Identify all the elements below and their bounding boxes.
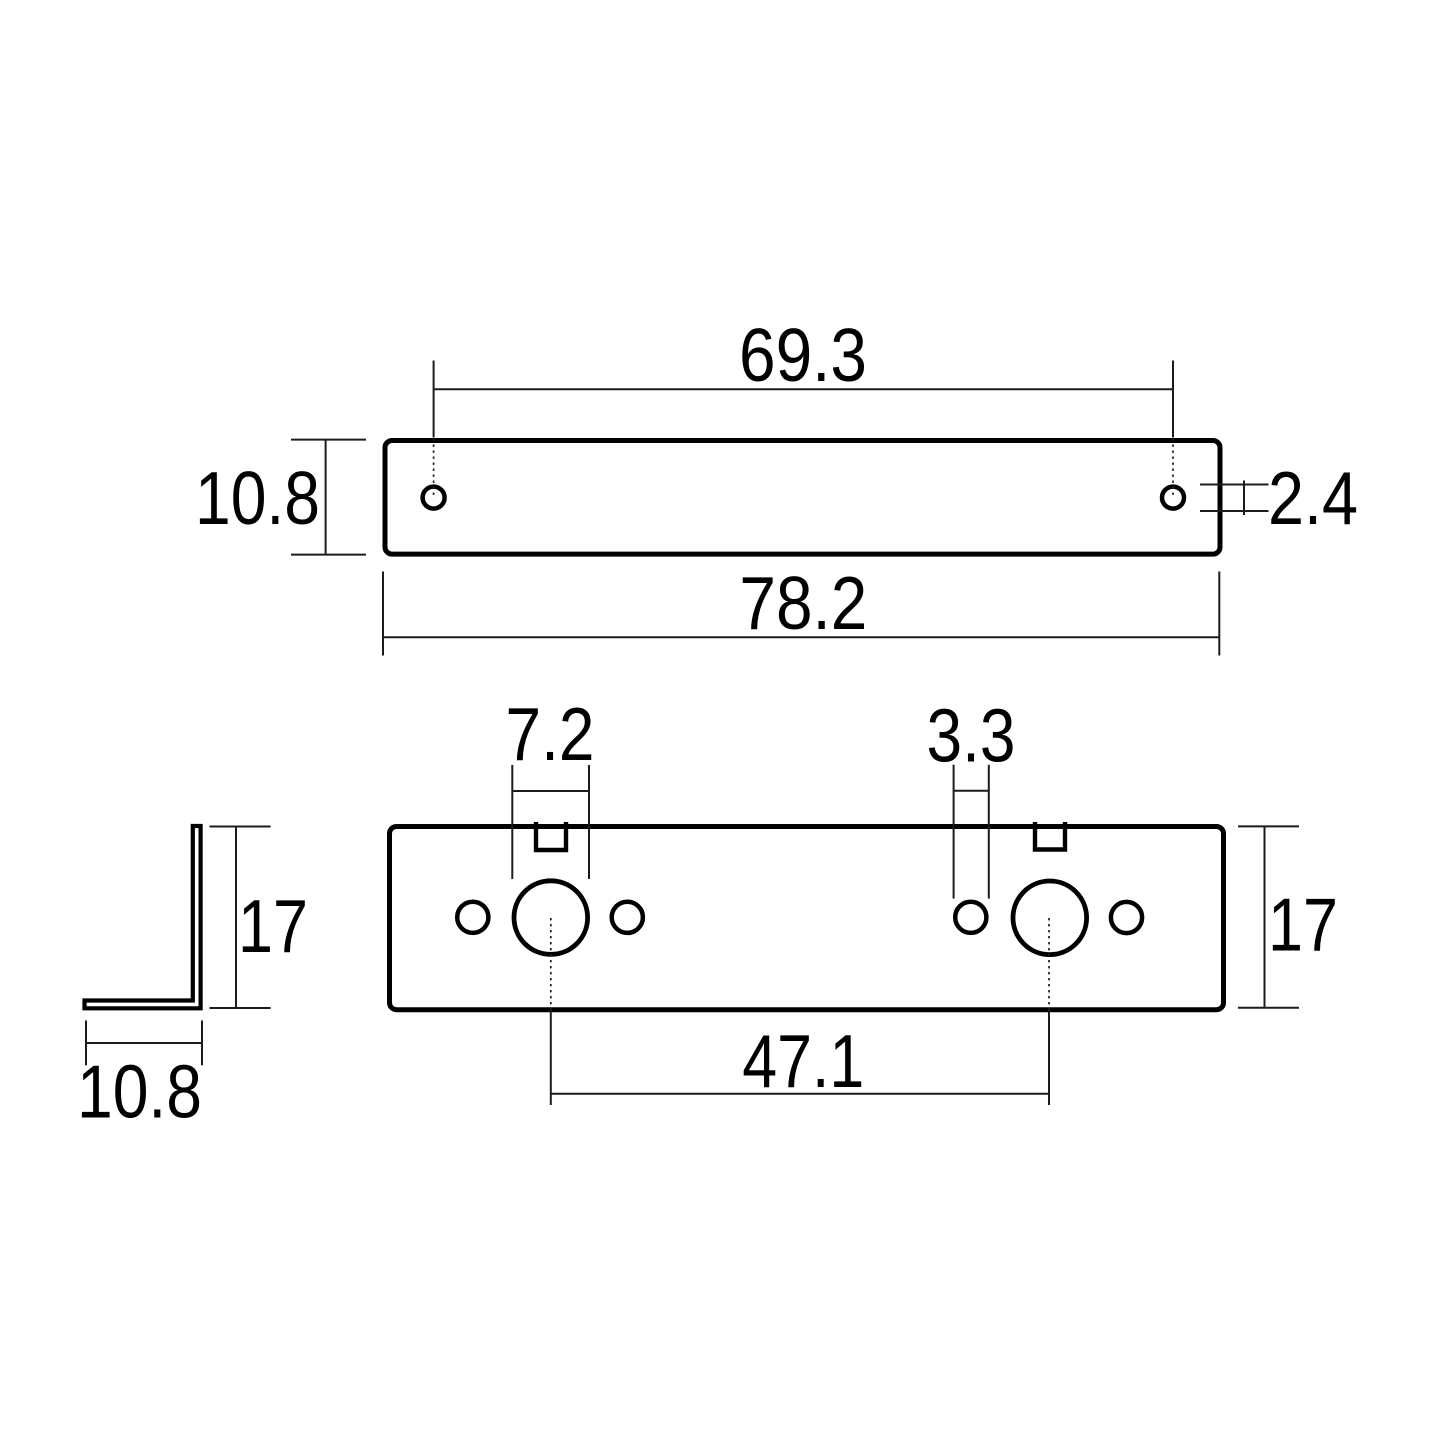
svg-text:10.8: 10.8 (77, 1050, 202, 1134)
svg-text:69.3: 69.3 (739, 313, 867, 397)
svg-text:2.4: 2.4 (1268, 456, 1358, 540)
svg-text:7.2: 7.2 (506, 692, 595, 776)
svg-text:17: 17 (1268, 883, 1338, 967)
svg-text:3.3: 3.3 (927, 694, 1016, 778)
svg-text:47.1: 47.1 (742, 1019, 864, 1103)
svg-text:17: 17 (238, 884, 308, 968)
svg-text:10.8: 10.8 (195, 456, 320, 540)
svg-text:78.2: 78.2 (739, 561, 867, 645)
